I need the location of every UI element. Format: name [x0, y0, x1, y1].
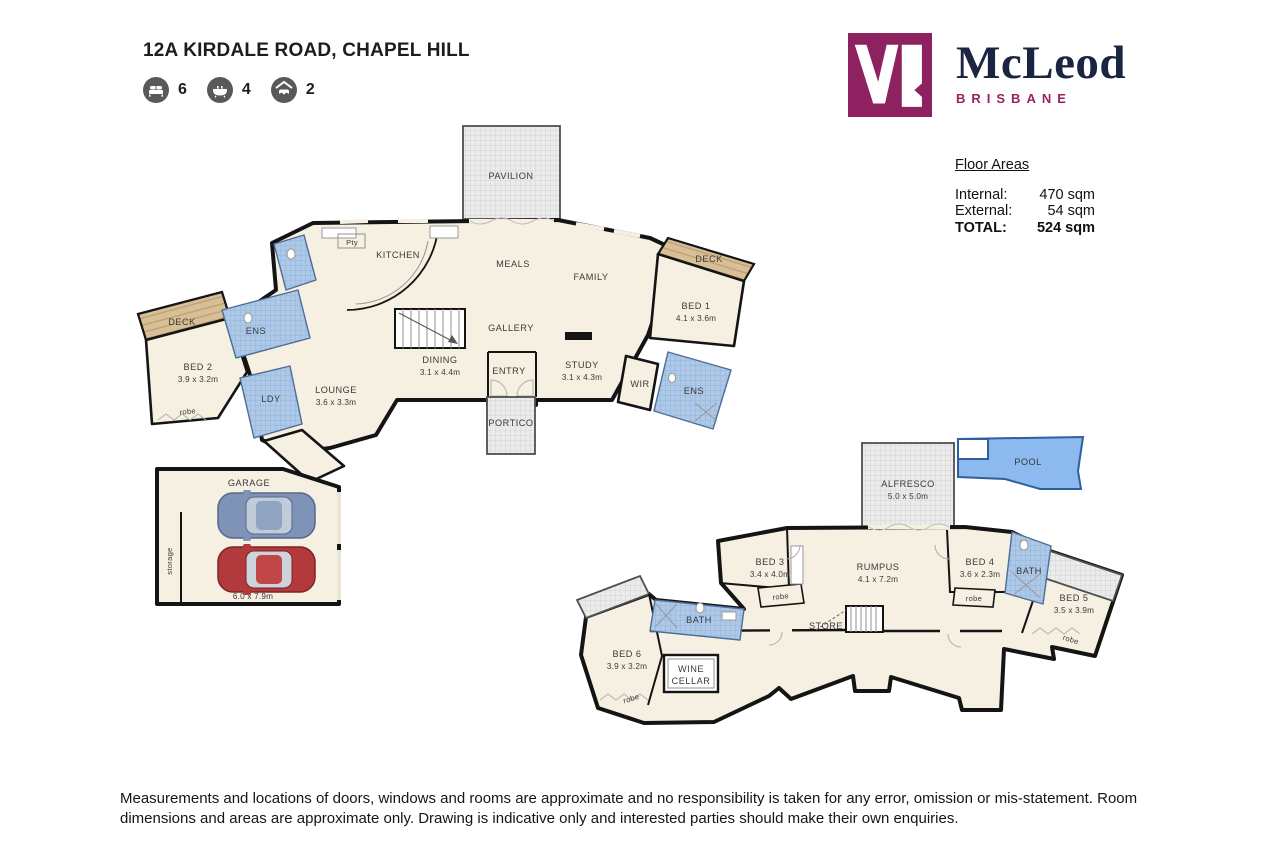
room-label-bed2: BED 2 — [183, 362, 212, 372]
room-label-store: STORE — [809, 621, 843, 631]
disclaimer-text: Measurements and locations of doors, win… — [120, 789, 1174, 830]
room-label-wir: WIR — [630, 379, 649, 389]
room-label-study: STUDY — [565, 360, 599, 370]
room-label-garage: GARAGE — [228, 478, 270, 488]
room-dims-bed4: 3.6 x 2.3m — [960, 570, 1000, 579]
logo-brand-name: McLeod — [956, 39, 1126, 88]
room-label-deck-right: DECK — [695, 254, 723, 264]
bath-icon — [207, 77, 233, 103]
floor-area-value: 524 sqm — [1037, 220, 1095, 236]
room-dims-garage: 6.0 x 7.9m — [233, 592, 273, 601]
room-label-gallery: GALLERY — [488, 323, 534, 333]
room-label-ldy: LDY — [261, 394, 280, 404]
floor-area-row-external: External: 54 sqm — [955, 203, 1095, 219]
floor-area-row-internal: Internal: 470 sqm — [955, 187, 1095, 203]
room-label-kitchen: KITCHEN — [376, 250, 420, 260]
room-label-bed1: BED 1 — [681, 301, 710, 311]
floor-areas-panel: Floor Areas Internal: 470 sqm External: … — [955, 157, 1095, 236]
room-label-alfresco: ALFRESCO — [881, 479, 935, 489]
room-label-dining: DINING — [422, 355, 457, 365]
upper-floor-plan: PAVILION DECK BED 2 3.9 x 3.2m robe ENS — [138, 126, 754, 454]
room-label-cellar: CELLAR — [672, 676, 711, 686]
room-dims-bed6: 3.9 x 3.2m — [607, 662, 647, 671]
floorplan-page: PAVILION DECK BED 2 3.9 x 3.2m robe ENS — [0, 0, 1284, 856]
room-label-storage: storage — [165, 547, 174, 574]
logo-text: McLeod BRISBANE — [956, 33, 1126, 106]
stat-baths: 4 — [207, 77, 251, 103]
page-title: 12A KIRDALE ROAD, CHAPEL HILL — [143, 40, 470, 62]
room-label-pantry: Pty — [346, 238, 358, 247]
car-icon — [271, 77, 297, 103]
floor-area-value: 470 sqm — [1039, 187, 1095, 203]
floor-area-label: External: — [955, 203, 1012, 219]
room-dims-bed5: 3.5 x 3.9m — [1054, 606, 1094, 615]
room-label-wine: WINE — [678, 664, 704, 674]
floor-area-row-total: TOTAL: 524 sqm — [955, 220, 1095, 236]
room-dims-study: 3.1 x 4.3m — [562, 373, 602, 382]
room-label-family: FAMILY — [574, 272, 609, 282]
stat-beds: 6 — [143, 77, 187, 103]
room-label-portico: PORTICO — [488, 418, 533, 428]
room-dims-bed1: 4.1 x 3.6m — [676, 314, 716, 323]
logo-tagline: BRISBANE — [956, 91, 1126, 106]
room-label-lounge: LOUNGE — [315, 385, 357, 395]
room-label-pavilion: PAVILION — [488, 171, 533, 181]
room-label-bed3: BED 3 — [755, 557, 784, 567]
floorplan-drawing: PAVILION DECK BED 2 3.9 x 3.2m robe ENS — [0, 0, 1284, 856]
room-dims-bed3: 3.4 x 4.0m — [750, 570, 790, 579]
room-label-ens-right: ENS — [684, 386, 704, 396]
floor-area-label: Internal: — [955, 187, 1007, 203]
mcleod-m-icon — [848, 33, 932, 117]
room-label-entry: ENTRY — [492, 366, 525, 376]
agency-logo: McLeod BRISBANE — [848, 33, 1126, 117]
room-label-bath-left: BATH — [686, 615, 712, 625]
lower-floor-plan: ALFRESCO 5.0 x 5.0m POOL BED 3 — [577, 437, 1122, 723]
pool-step — [958, 439, 988, 459]
room-label-bath-right: BATH — [1016, 566, 1042, 576]
room-label-pool: POOL — [1014, 457, 1042, 467]
room-label-bed6: BED 6 — [612, 649, 641, 659]
room-label-robe-bed3: robe — [772, 591, 789, 602]
floor-area-label: TOTAL: — [955, 220, 1007, 236]
floor-area-value: 54 sqm — [1047, 203, 1095, 219]
room-dims-dining: 3.1 x 4.4m — [420, 368, 460, 377]
room-dims-bed2: 3.9 x 3.2m — [178, 375, 218, 384]
bed-count: 6 — [178, 81, 187, 99]
room-label-deck-left: DECK — [168, 317, 196, 327]
bath-count: 4 — [242, 81, 251, 99]
room-label-robe-bed2: robe — [179, 406, 196, 417]
logo-mark — [848, 33, 932, 117]
car-count: 2 — [306, 81, 315, 99]
room-dims-alfresco: 5.0 x 5.0m — [888, 492, 928, 501]
room-dims-rumpus: 4.1 x 7.2m — [858, 575, 898, 584]
room-label-ens-left: ENS — [246, 326, 266, 336]
room-label-meals: MEALS — [496, 259, 530, 269]
room-label-bed4: BED 4 — [965, 557, 994, 567]
room-dims-lounge: 3.6 x 3.3m — [316, 398, 356, 407]
bed-icon — [143, 77, 169, 103]
room-label-robe-bed4: robe — [966, 594, 982, 603]
garage-plan: storage GARAGE 6.0 x 7.9m — [157, 430, 344, 604]
car-red — [218, 544, 315, 595]
room-label-bed5: BED 5 — [1059, 593, 1088, 603]
room-label-rumpus: RUMPUS — [857, 562, 900, 572]
car-blue — [218, 490, 315, 541]
property-stats: 6 4 2 — [143, 77, 315, 103]
floor-areas-heading: Floor Areas — [955, 157, 1095, 173]
stat-cars: 2 — [271, 77, 315, 103]
